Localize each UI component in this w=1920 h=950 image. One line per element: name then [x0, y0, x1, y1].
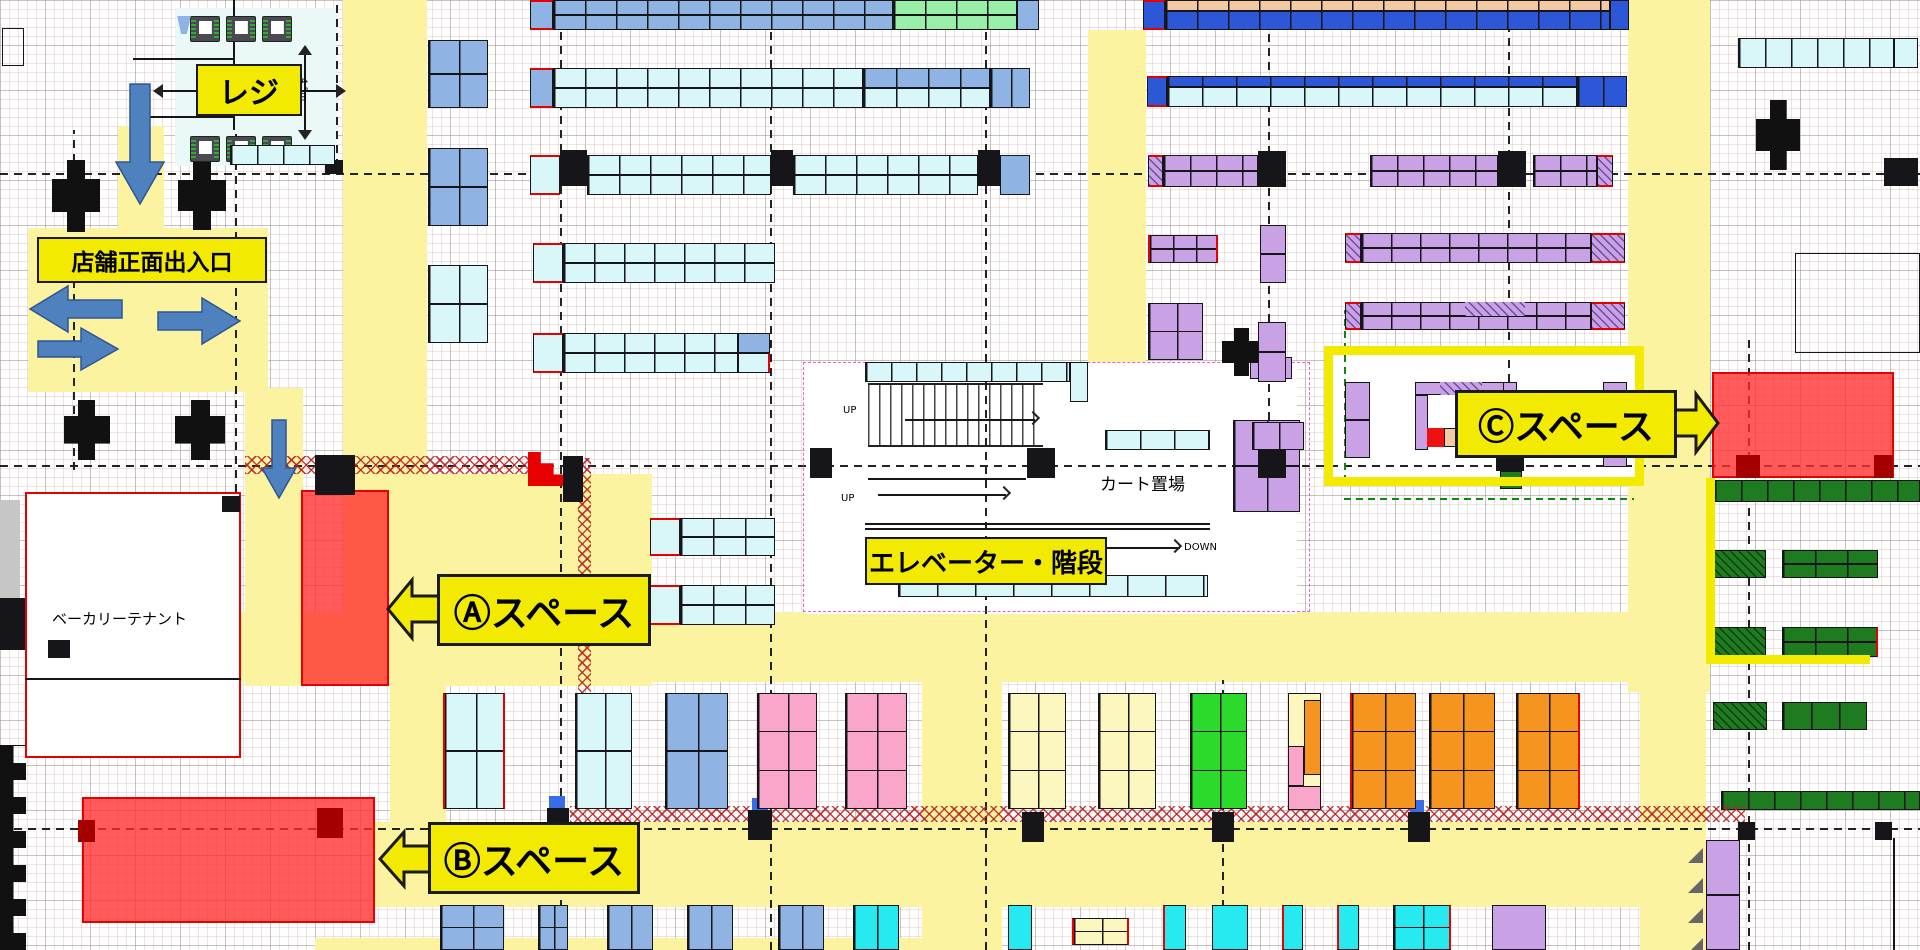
shelf-row — [1738, 38, 1894, 68]
display-block — [1304, 700, 1321, 775]
display-block — [1288, 746, 1304, 786]
display-block — [1008, 905, 1032, 950]
shelf-endcap — [1591, 233, 1625, 263]
shelf-endcap — [1345, 233, 1361, 263]
display-block — [1516, 693, 1580, 809]
display-block — [778, 905, 824, 950]
shelf-row — [1167, 76, 1577, 87]
shelf-endcap — [1000, 155, 1030, 195]
pillar — [1756, 100, 1800, 170]
pillar — [1027, 448, 1055, 478]
display-block — [1163, 905, 1186, 950]
shelf-block — [1713, 702, 1767, 730]
pillar — [1258, 151, 1286, 187]
shelf-block — [1706, 840, 1740, 950]
shelf-endcap — [1597, 155, 1613, 187]
shelf-row — [863, 68, 990, 88]
register — [190, 16, 220, 42]
pillar-dark-red — [317, 808, 343, 838]
shelf-endcap — [530, 155, 560, 195]
display-block — [1212, 905, 1248, 950]
fixtures-layer — [0, 0, 1920, 950]
pillar-dark-red — [1736, 455, 1760, 478]
shelf-row — [1714, 480, 1920, 502]
shelf-block — [1258, 322, 1286, 382]
pillar — [1408, 812, 1430, 842]
dim-arrow-line — [304, 46, 306, 138]
shelf-block — [1260, 225, 1286, 283]
shelf-row — [1370, 155, 1498, 187]
display-block — [757, 693, 817, 809]
shelf-endcap — [530, 68, 553, 108]
pillar — [748, 810, 772, 840]
display-block — [1008, 693, 1066, 809]
display-block — [428, 40, 488, 108]
wall-sawtooth — [0, 745, 26, 950]
pillar — [547, 808, 569, 840]
stair-line — [868, 478, 1026, 480]
register — [226, 16, 256, 42]
shelf-row — [865, 362, 1070, 382]
space-a-area — [301, 490, 389, 686]
display-block — [575, 693, 632, 809]
shelf-row — [563, 243, 775, 283]
pillar — [48, 640, 70, 658]
pillar — [1738, 822, 1755, 840]
stair-line — [865, 528, 1210, 530]
shelf-row — [553, 0, 893, 30]
store-floor-plan: レジ 4.5m 店舗正面出入口 Ⓐスペース Ⓑスペース Ⓒスペース エ — [0, 0, 1920, 950]
display-block — [428, 148, 488, 226]
wall — [133, 116, 233, 118]
corridor — [1088, 30, 1146, 370]
shelf-endcap — [990, 68, 1030, 108]
shelf-row — [553, 68, 863, 108]
shelf-endcap — [650, 585, 680, 625]
shelf-row — [680, 518, 775, 556]
shelf-row — [1105, 430, 1210, 450]
shelf-block — [1148, 303, 1203, 360]
display-block — [1288, 786, 1321, 810]
display-block — [1429, 693, 1495, 809]
display-block — [1350, 693, 1416, 809]
corridor — [28, 228, 268, 392]
wall — [25, 678, 241, 680]
dim-arrow-head — [298, 38, 312, 55]
shelf-row — [587, 155, 771, 195]
corridor — [118, 126, 164, 232]
zone-border-thick — [1706, 478, 1715, 664]
shelf-endcap — [533, 333, 563, 373]
shelf-block — [1782, 702, 1867, 730]
pillar — [0, 598, 25, 650]
dash-line — [235, 130, 237, 492]
pillar — [1498, 151, 1526, 187]
display-block — [1492, 905, 1546, 950]
shelf-row — [1167, 87, 1577, 107]
corridor — [240, 612, 1710, 682]
hatch-triangle — [1688, 908, 1703, 923]
register — [190, 136, 220, 162]
pillar — [175, 400, 225, 460]
shelf-row — [1721, 791, 1920, 810]
pillar — [1022, 812, 1044, 842]
shelf-endcap — [1577, 76, 1627, 107]
shelf-row — [893, 0, 1017, 30]
shelf-cell — [1070, 362, 1088, 402]
backroom — [2, 28, 24, 66]
display-block — [1282, 905, 1303, 950]
shelf-endcap — [1345, 302, 1361, 330]
pillar — [222, 496, 240, 512]
pillar — [64, 400, 110, 460]
backroom — [1795, 253, 1920, 353]
shelf-endcap — [1147, 76, 1167, 107]
dim-arrow-line — [158, 90, 198, 92]
pillar-dark-red — [1874, 455, 1893, 478]
register — [262, 16, 292, 42]
shelf-block — [1712, 550, 1766, 578]
pillar — [1884, 158, 1918, 186]
hatch-triangle — [1688, 848, 1703, 863]
display-block — [687, 905, 733, 950]
display-block — [1098, 693, 1156, 809]
display-block — [443, 693, 505, 809]
hatch-triangle — [1688, 878, 1703, 893]
shelf-endcap — [1610, 0, 1629, 30]
display-block — [428, 265, 488, 343]
pillar-dark-red — [78, 820, 95, 842]
shelf-row — [898, 575, 1208, 597]
shelf-row — [1165, 11, 1610, 30]
display-block — [538, 905, 568, 950]
shelf-row — [1533, 155, 1597, 187]
pillar — [563, 456, 583, 502]
dim-arrow-head — [336, 84, 353, 98]
stair-arrow-line — [905, 419, 1035, 421]
shelf-block — [1252, 422, 1304, 450]
space-c-zone-border — [1324, 346, 1644, 486]
shelf-block — [1712, 627, 1766, 657]
shelf-endcap — [1894, 38, 1918, 68]
display-block — [607, 905, 653, 950]
shelf-block — [1782, 550, 1878, 578]
marker-blue — [549, 796, 565, 808]
pillar — [810, 448, 832, 478]
shelf-endcap — [1148, 155, 1163, 187]
shelf-endcap — [650, 518, 680, 556]
pillar — [771, 150, 793, 186]
pillar — [178, 162, 226, 230]
pillar — [1222, 328, 1262, 376]
wall — [133, 58, 233, 60]
shelf-hatch — [1465, 302, 1525, 316]
display-block — [665, 693, 728, 809]
display-block — [1190, 693, 1247, 809]
construction-hatch — [245, 456, 530, 474]
pillar — [315, 455, 355, 495]
shelf-row — [563, 333, 738, 373]
pillar — [1258, 448, 1286, 478]
shelf-row — [680, 585, 775, 625]
display-table — [1072, 918, 1129, 945]
dim-arrow-head — [298, 130, 312, 147]
shelf-row — [793, 155, 978, 195]
shelf-row — [1165, 0, 1610, 11]
wall — [1893, 838, 1895, 950]
display-block — [440, 905, 504, 950]
display-block — [845, 693, 907, 809]
zone-border-thick — [1706, 655, 1870, 664]
zone-boundary-green — [1344, 498, 1634, 500]
shelf-endcap — [533, 243, 563, 283]
bakery-room — [25, 492, 241, 758]
shelf-block — [1148, 235, 1218, 263]
display-block — [1337, 905, 1359, 950]
dim-arrow-head — [146, 84, 163, 98]
shelf-row — [1361, 233, 1591, 263]
shelf-endcap — [1143, 0, 1165, 30]
shelf-block — [1782, 627, 1878, 657]
stairs — [868, 383, 1043, 447]
pillar — [560, 150, 587, 186]
stair-arrow-line — [1040, 547, 1180, 549]
shelf-endcap — [530, 0, 553, 30]
shelf-row — [863, 88, 990, 108]
pillar — [1875, 822, 1892, 840]
marker-red-steps — [528, 452, 568, 486]
display-block — [1393, 905, 1451, 950]
pillar — [1212, 812, 1234, 842]
pillar — [52, 160, 100, 232]
shelf-endcap — [1017, 0, 1039, 30]
stair-line — [865, 523, 1210, 525]
display-block — [853, 905, 899, 950]
shelf-row — [1163, 155, 1258, 187]
pillar — [978, 150, 1000, 186]
shelf-endcap — [1591, 302, 1625, 330]
hatch-triangle — [1688, 938, 1703, 950]
stair-arrow-line — [878, 494, 1006, 496]
shelf-cell — [738, 333, 770, 353]
shelf-cell — [738, 353, 770, 373]
shelf-row — [230, 145, 335, 165]
